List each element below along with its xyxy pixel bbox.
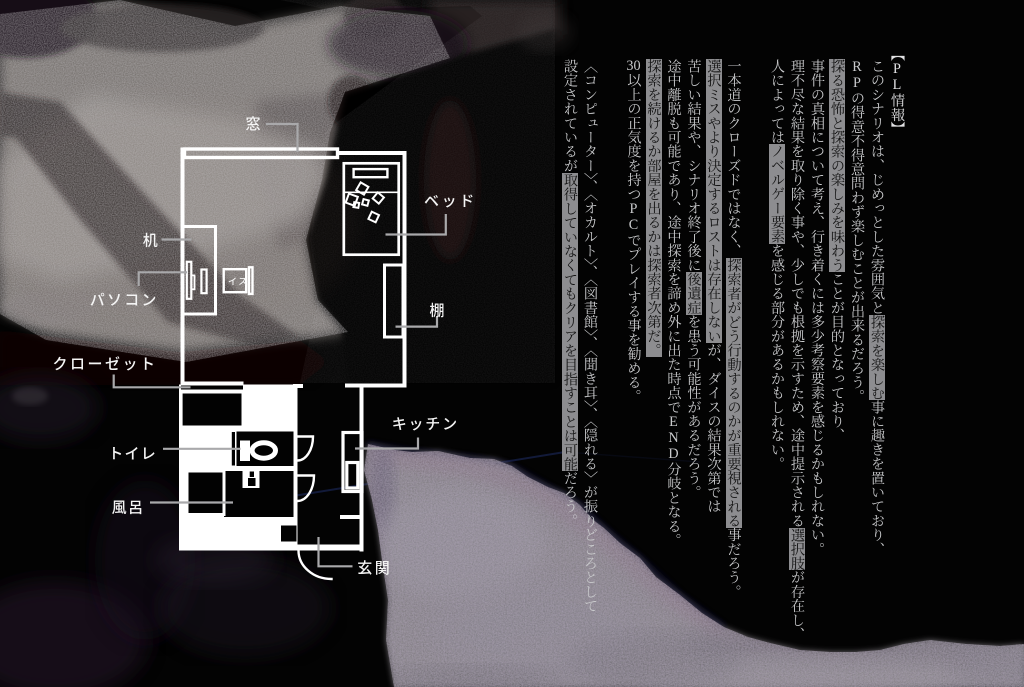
svg-text:玄関: 玄関 bbox=[357, 560, 392, 577]
svg-text:机: 机 bbox=[143, 233, 158, 250]
svg-text:クローゼット: クローゼット bbox=[53, 356, 158, 373]
svg-text:トイレ: トイレ bbox=[108, 446, 157, 463]
svg-text:風呂: 風呂 bbox=[112, 499, 145, 516]
svg-text:イス: イス bbox=[228, 277, 249, 287]
svg-text:棚: 棚 bbox=[430, 303, 445, 320]
svg-text:キッチン: キッチン bbox=[392, 416, 459, 433]
svg-text:パソコン: パソコン bbox=[90, 292, 159, 309]
svg-text:窓: 窓 bbox=[246, 115, 261, 133]
svg-text:ベッド: ベッド bbox=[424, 193, 477, 210]
